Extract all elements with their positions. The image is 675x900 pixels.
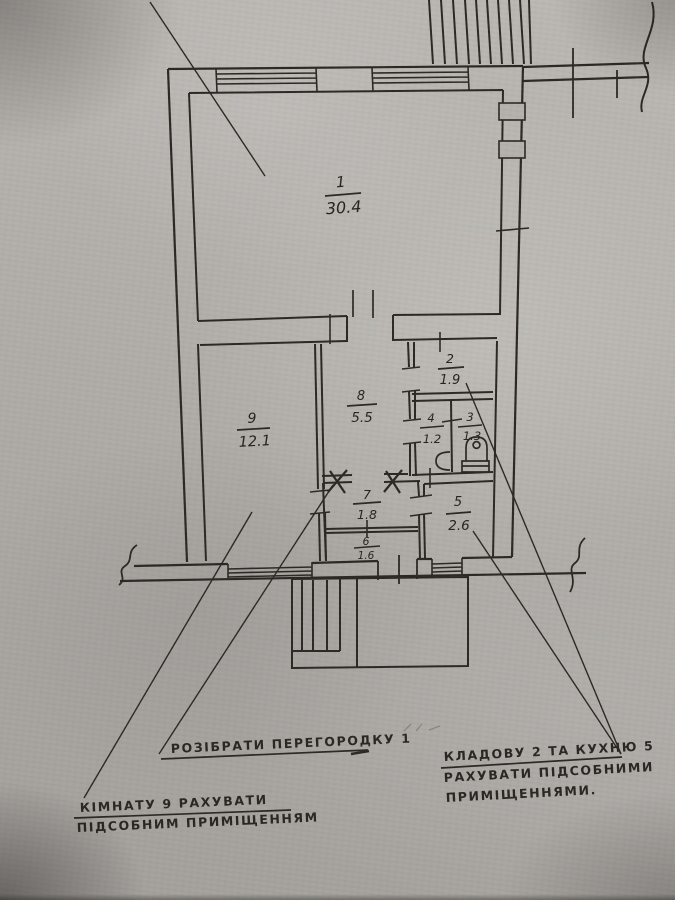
room-8-label: 8 5.5 <box>347 389 377 426</box>
room-8-number: 8 <box>357 389 365 404</box>
room-6-label: 6 1.6 <box>354 535 380 562</box>
annotation-demolish-partition-text: РОЗІБРАТИ ПЕРЕГОРОДКУ 1 <box>170 731 411 756</box>
annotation-storage-kitchen-auxiliary: КЛАДОВУ 2 ТА КУХНЮ 5 РАХУВАТИ ПІДСОБНИМИ… <box>441 738 655 805</box>
room-9-label: 9 12.1 <box>237 411 271 451</box>
annotation-storage-line2: РАХУВАТИ ПІДСОБНИМИ <box>443 759 654 785</box>
leader-top <box>150 2 265 176</box>
annotation-demolish-partition: РОЗІБРАТИ ПЕРЕГОРОДКУ 1 <box>161 731 412 759</box>
window-bottom-room5 <box>432 558 462 575</box>
room-6-number: 6 <box>363 535 370 548</box>
window-top-2 <box>372 67 469 91</box>
wall-break-symbol-bottom-right <box>570 538 585 592</box>
room-2-label: 2 1.9 <box>438 351 464 388</box>
wall-break-symbol-top-right <box>641 2 653 112</box>
annotation-room9-auxiliary: КІМНАТУ 9 РАХУВАТИ ПІДСОБНИМ ПРИМІЩЕННЯМ <box>74 792 319 835</box>
room-7-number: 7 <box>363 487 371 502</box>
staircase <box>292 577 468 668</box>
room-4-number: 4 <box>427 411 434 425</box>
room-4-area: 1.2 <box>423 432 441 446</box>
room-2-area: 1.9 <box>440 373 461 388</box>
door-bottom-room6 <box>378 555 417 584</box>
room-7-area: 1.8 <box>357 507 377 522</box>
room-5-label: 5 2.6 <box>446 495 471 534</box>
room-5-number: 5 <box>454 495 462 510</box>
room-1-label: 1 30.4 <box>325 173 362 219</box>
room-4-label: 4 1.2 <box>420 411 444 446</box>
room-3-number: 3 <box>466 410 473 424</box>
room-1-area: 30.4 <box>325 197 362 218</box>
room-5-area: 2.6 <box>448 518 469 534</box>
window-top-1 <box>216 68 317 92</box>
adjacent-stair-hatching <box>429 0 531 64</box>
room-9-number: 9 <box>248 411 257 427</box>
scanned-floor-plan-photo: 1 30.4 9 12.1 8 5.5 2 1.9 4 1.2 3 1.3 <box>0 0 675 900</box>
room-3-area: 1.3 <box>463 429 481 443</box>
room-6-area: 1.6 <box>358 550 375 562</box>
leader-room5-note <box>473 531 621 754</box>
sink-icon <box>436 452 450 470</box>
room-2-number: 2 <box>446 351 454 366</box>
window-bottom-room9 <box>228 562 312 578</box>
room-3-label: 3 1.3 <box>458 410 482 443</box>
annotation-storage-line3: ПРИМІЩЕННЯМИ. <box>445 782 597 805</box>
room-9-area: 12.1 <box>238 433 271 451</box>
room1-lower-wall <box>200 290 497 345</box>
room-7-label: 7 1.8 <box>353 487 381 522</box>
room-8-area: 5.5 <box>351 410 372 426</box>
leader-room9-note <box>84 512 252 798</box>
leader-lines <box>84 2 621 798</box>
room-1-number: 1 <box>335 173 346 192</box>
door-leaf-room1 <box>353 290 373 318</box>
floor-plan-drawing: 1 30.4 9 12.1 8 5.5 2 1.9 4 1.2 3 1.3 <box>0 0 675 900</box>
leader-room2-note <box>466 383 621 754</box>
